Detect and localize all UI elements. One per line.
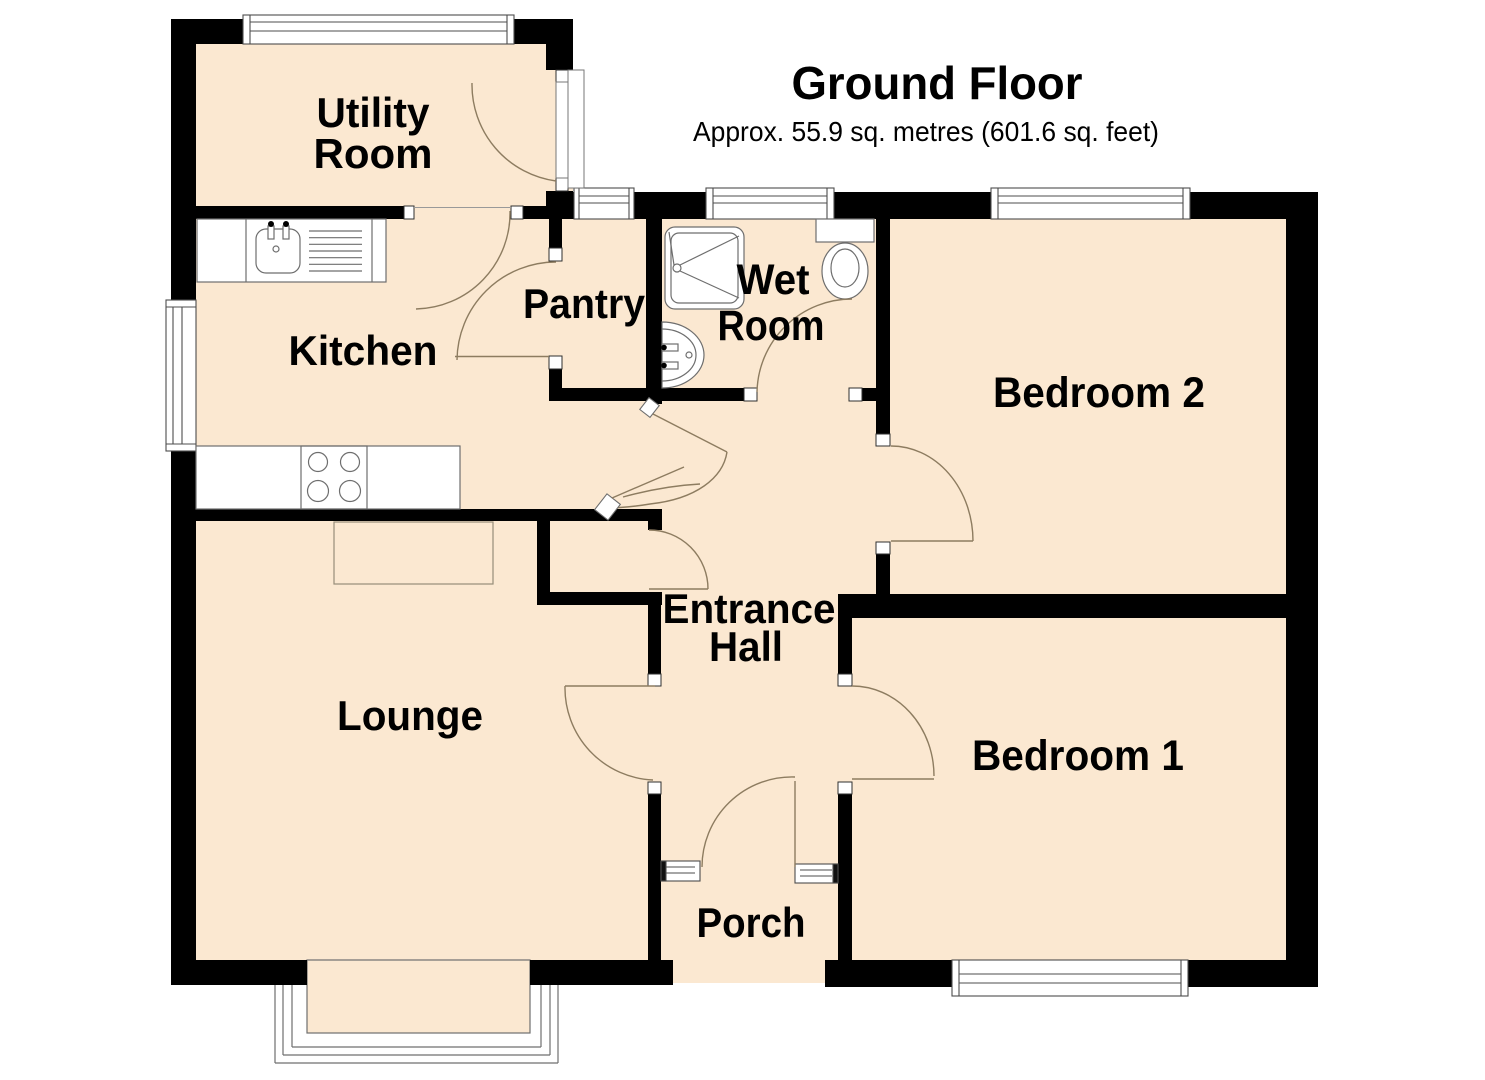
- svg-text:Bedroom 2: Bedroom 2: [993, 369, 1205, 417]
- svg-text:Pantry: Pantry: [523, 280, 646, 327]
- svg-text:Hall: Hall: [709, 623, 783, 670]
- svg-text:Wet: Wet: [737, 256, 810, 304]
- svg-text:Room: Room: [314, 130, 433, 177]
- svg-text:Room: Room: [718, 302, 825, 350]
- svg-text:Kitchen: Kitchen: [289, 327, 438, 374]
- svg-text:Approx. 55.9 sq. metres (601.6: Approx. 55.9 sq. metres (601.6 sq. feet): [693, 116, 1159, 147]
- svg-text:Porch: Porch: [697, 899, 806, 946]
- svg-text:Bedroom 1: Bedroom 1: [972, 732, 1184, 780]
- svg-text:Lounge: Lounge: [337, 692, 483, 739]
- svg-text:Utility: Utility: [317, 89, 431, 136]
- svg-text:Ground Floor: Ground Floor: [792, 57, 1083, 109]
